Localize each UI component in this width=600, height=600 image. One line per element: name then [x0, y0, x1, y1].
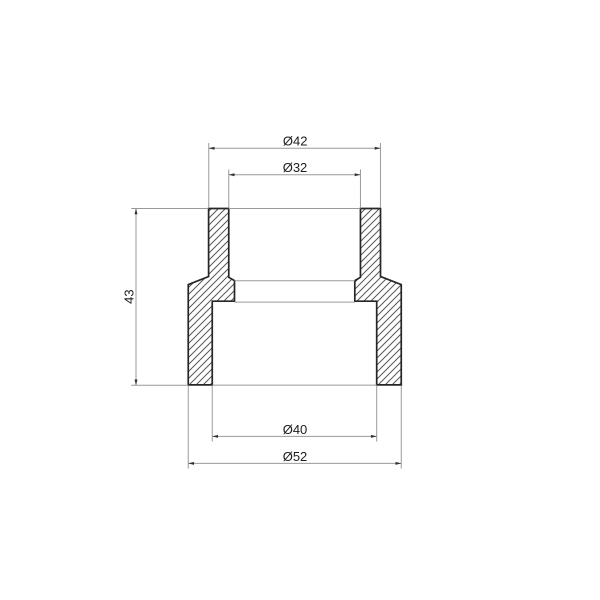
svg-text:Ø42: Ø42	[283, 133, 308, 148]
svg-text:Ø32: Ø32	[283, 160, 308, 175]
svg-text:43: 43	[121, 289, 136, 303]
svg-text:Ø52: Ø52	[283, 449, 308, 464]
svg-text:Ø40: Ø40	[283, 422, 308, 437]
